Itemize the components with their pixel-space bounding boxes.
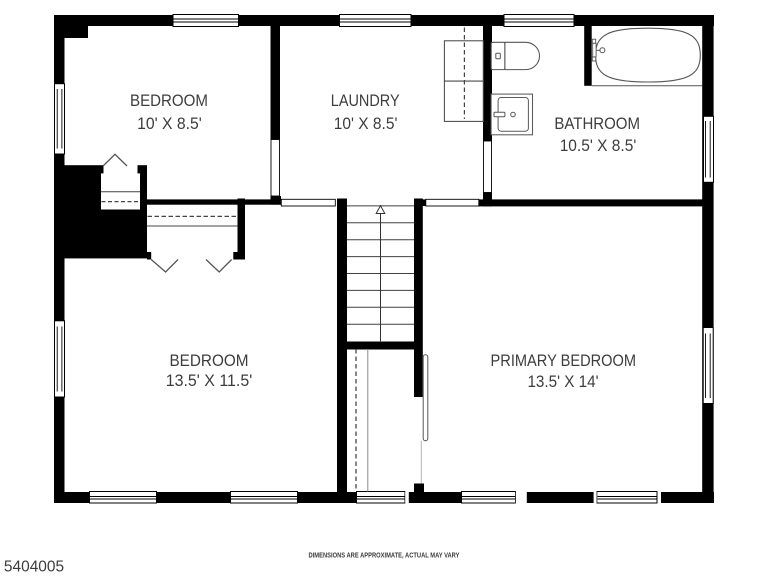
svg-text:BATHROOM: BATHROOM [554, 115, 640, 133]
svg-text:10' X 8.5': 10' X 8.5' [137, 115, 202, 133]
svg-text:BEDROOM: BEDROOM [130, 92, 208, 110]
svg-text:5404005: 5404005 [4, 558, 64, 575]
svg-text:10' X 8.5': 10' X 8.5' [334, 115, 398, 133]
svg-text:BEDROOM: BEDROOM [169, 352, 248, 370]
svg-text:10.5' X 8.5': 10.5' X 8.5' [560, 137, 637, 155]
svg-text:LAUNDRY: LAUNDRY [331, 92, 400, 110]
svg-text:13.5' X 14': 13.5' X 14' [527, 373, 598, 391]
svg-text:PRIMARY BEDROOM: PRIMARY BEDROOM [491, 352, 637, 370]
svg-text:DIMENSIONS ARE APPROXIMATE, AC: DIMENSIONS ARE APPROXIMATE, ACTUAL MAY V… [309, 550, 460, 559]
svg-text:13.5' X 11.5': 13.5' X 11.5' [166, 372, 253, 390]
